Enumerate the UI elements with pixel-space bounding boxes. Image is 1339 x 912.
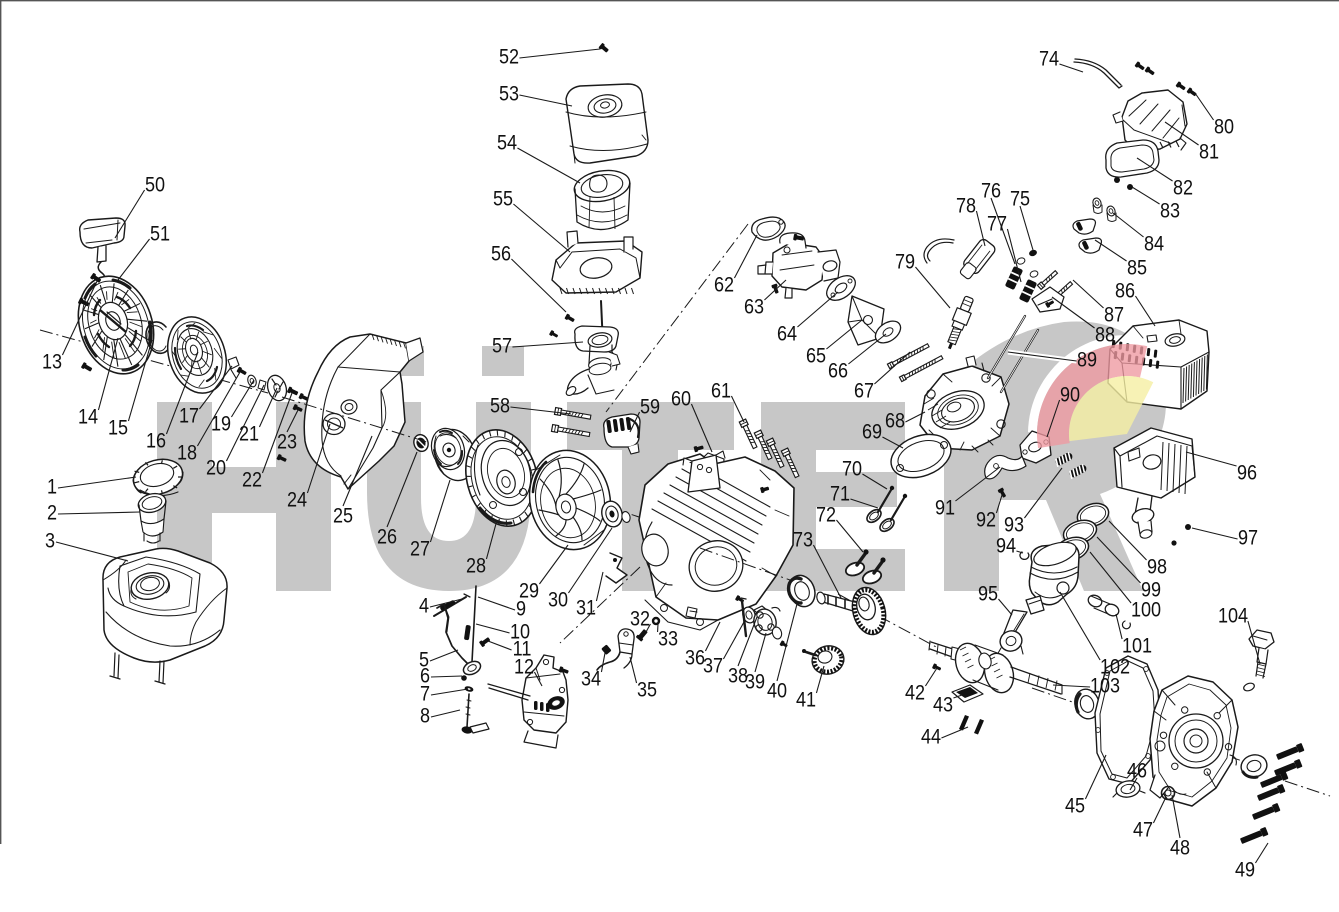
svg-text:54: 54 [497, 131, 517, 155]
svg-text:26: 26 [377, 525, 397, 549]
svg-text:98: 98 [1147, 555, 1167, 579]
svg-text:52: 52 [499, 45, 519, 69]
svg-text:50: 50 [145, 173, 165, 197]
svg-text:57: 57 [492, 334, 512, 358]
svg-text:48: 48 [1170, 836, 1190, 860]
svg-text:78: 78 [956, 194, 976, 218]
svg-text:58: 58 [490, 394, 510, 418]
svg-text:76: 76 [981, 179, 1001, 203]
svg-text:100: 100 [1131, 598, 1161, 622]
svg-text:72: 72 [816, 503, 836, 527]
svg-text:88: 88 [1095, 323, 1115, 347]
svg-text:25: 25 [333, 504, 353, 528]
svg-text:56: 56 [491, 242, 511, 266]
svg-text:75: 75 [1010, 187, 1030, 211]
svg-text:91: 91 [935, 496, 955, 520]
svg-text:42: 42 [905, 681, 925, 705]
svg-text:29: 29 [519, 579, 539, 603]
svg-text:4: 4 [419, 594, 429, 618]
svg-text:20: 20 [206, 456, 226, 480]
svg-text:19: 19 [211, 412, 231, 436]
svg-text:69: 69 [862, 420, 882, 444]
svg-text:3: 3 [45, 529, 55, 553]
svg-text:49: 49 [1235, 858, 1255, 882]
svg-text:41: 41 [796, 688, 816, 712]
svg-text:22: 22 [242, 468, 262, 492]
svg-text:95: 95 [978, 582, 998, 606]
svg-text:82: 82 [1173, 176, 1193, 200]
svg-text:45: 45 [1065, 794, 1085, 818]
svg-text:16: 16 [146, 429, 166, 453]
svg-text:73: 73 [793, 528, 813, 552]
svg-text:67: 67 [854, 379, 874, 403]
svg-text:104: 104 [1218, 604, 1248, 628]
svg-text:61: 61 [711, 379, 731, 403]
svg-text:32: 32 [630, 607, 650, 631]
svg-text:40: 40 [767, 679, 787, 703]
svg-text:81: 81 [1199, 140, 1219, 164]
svg-text:51: 51 [150, 222, 170, 246]
svg-text:55: 55 [493, 187, 513, 211]
svg-text:94: 94 [996, 534, 1016, 558]
svg-text:27: 27 [410, 537, 430, 561]
svg-text:96: 96 [1237, 461, 1257, 485]
svg-text:13: 13 [42, 350, 62, 374]
svg-text:74: 74 [1039, 47, 1059, 71]
svg-text:68: 68 [885, 409, 905, 433]
svg-text:62: 62 [714, 273, 734, 297]
svg-text:53: 53 [499, 82, 519, 106]
svg-text:37: 37 [703, 654, 723, 678]
svg-text:12: 12 [514, 655, 534, 679]
svg-text:63: 63 [744, 295, 764, 319]
svg-text:85: 85 [1127, 256, 1147, 280]
svg-text:47: 47 [1133, 818, 1153, 842]
svg-text:33: 33 [658, 627, 678, 651]
svg-text:18: 18 [177, 441, 197, 465]
svg-text:65: 65 [806, 344, 826, 368]
svg-text:83: 83 [1160, 199, 1180, 223]
svg-text:84: 84 [1144, 232, 1164, 256]
svg-text:80: 80 [1214, 115, 1234, 139]
svg-text:17: 17 [179, 404, 199, 428]
svg-text:39: 39 [745, 670, 765, 694]
svg-text:103: 103 [1090, 674, 1120, 698]
svg-text:21: 21 [239, 422, 259, 446]
svg-text:60: 60 [671, 387, 691, 411]
svg-text:31: 31 [576, 596, 596, 620]
svg-text:66: 66 [828, 359, 848, 383]
svg-text:46: 46 [1127, 759, 1147, 783]
svg-text:70: 70 [842, 457, 862, 481]
svg-text:64: 64 [777, 322, 797, 346]
svg-text:92: 92 [976, 508, 996, 532]
svg-text:34: 34 [581, 667, 601, 691]
svg-text:24: 24 [287, 488, 307, 512]
svg-text:79: 79 [895, 250, 915, 274]
svg-text:7: 7 [420, 682, 430, 706]
svg-text:30: 30 [548, 588, 568, 612]
svg-text:8: 8 [420, 704, 430, 728]
svg-text:77: 77 [987, 212, 1007, 236]
svg-text:2: 2 [47, 501, 57, 525]
svg-text:23: 23 [277, 430, 297, 454]
svg-text:90: 90 [1060, 383, 1080, 407]
svg-text:44: 44 [921, 725, 941, 749]
svg-text:28: 28 [466, 554, 486, 578]
svg-text:89: 89 [1077, 348, 1097, 372]
svg-text:86: 86 [1115, 279, 1135, 303]
svg-text:43: 43 [933, 693, 953, 717]
svg-text:97: 97 [1238, 526, 1258, 550]
svg-text:35: 35 [637, 678, 657, 702]
svg-text:1: 1 [47, 475, 57, 499]
svg-text:59: 59 [640, 395, 660, 419]
svg-text:15: 15 [108, 416, 128, 440]
svg-text:14: 14 [78, 405, 98, 429]
